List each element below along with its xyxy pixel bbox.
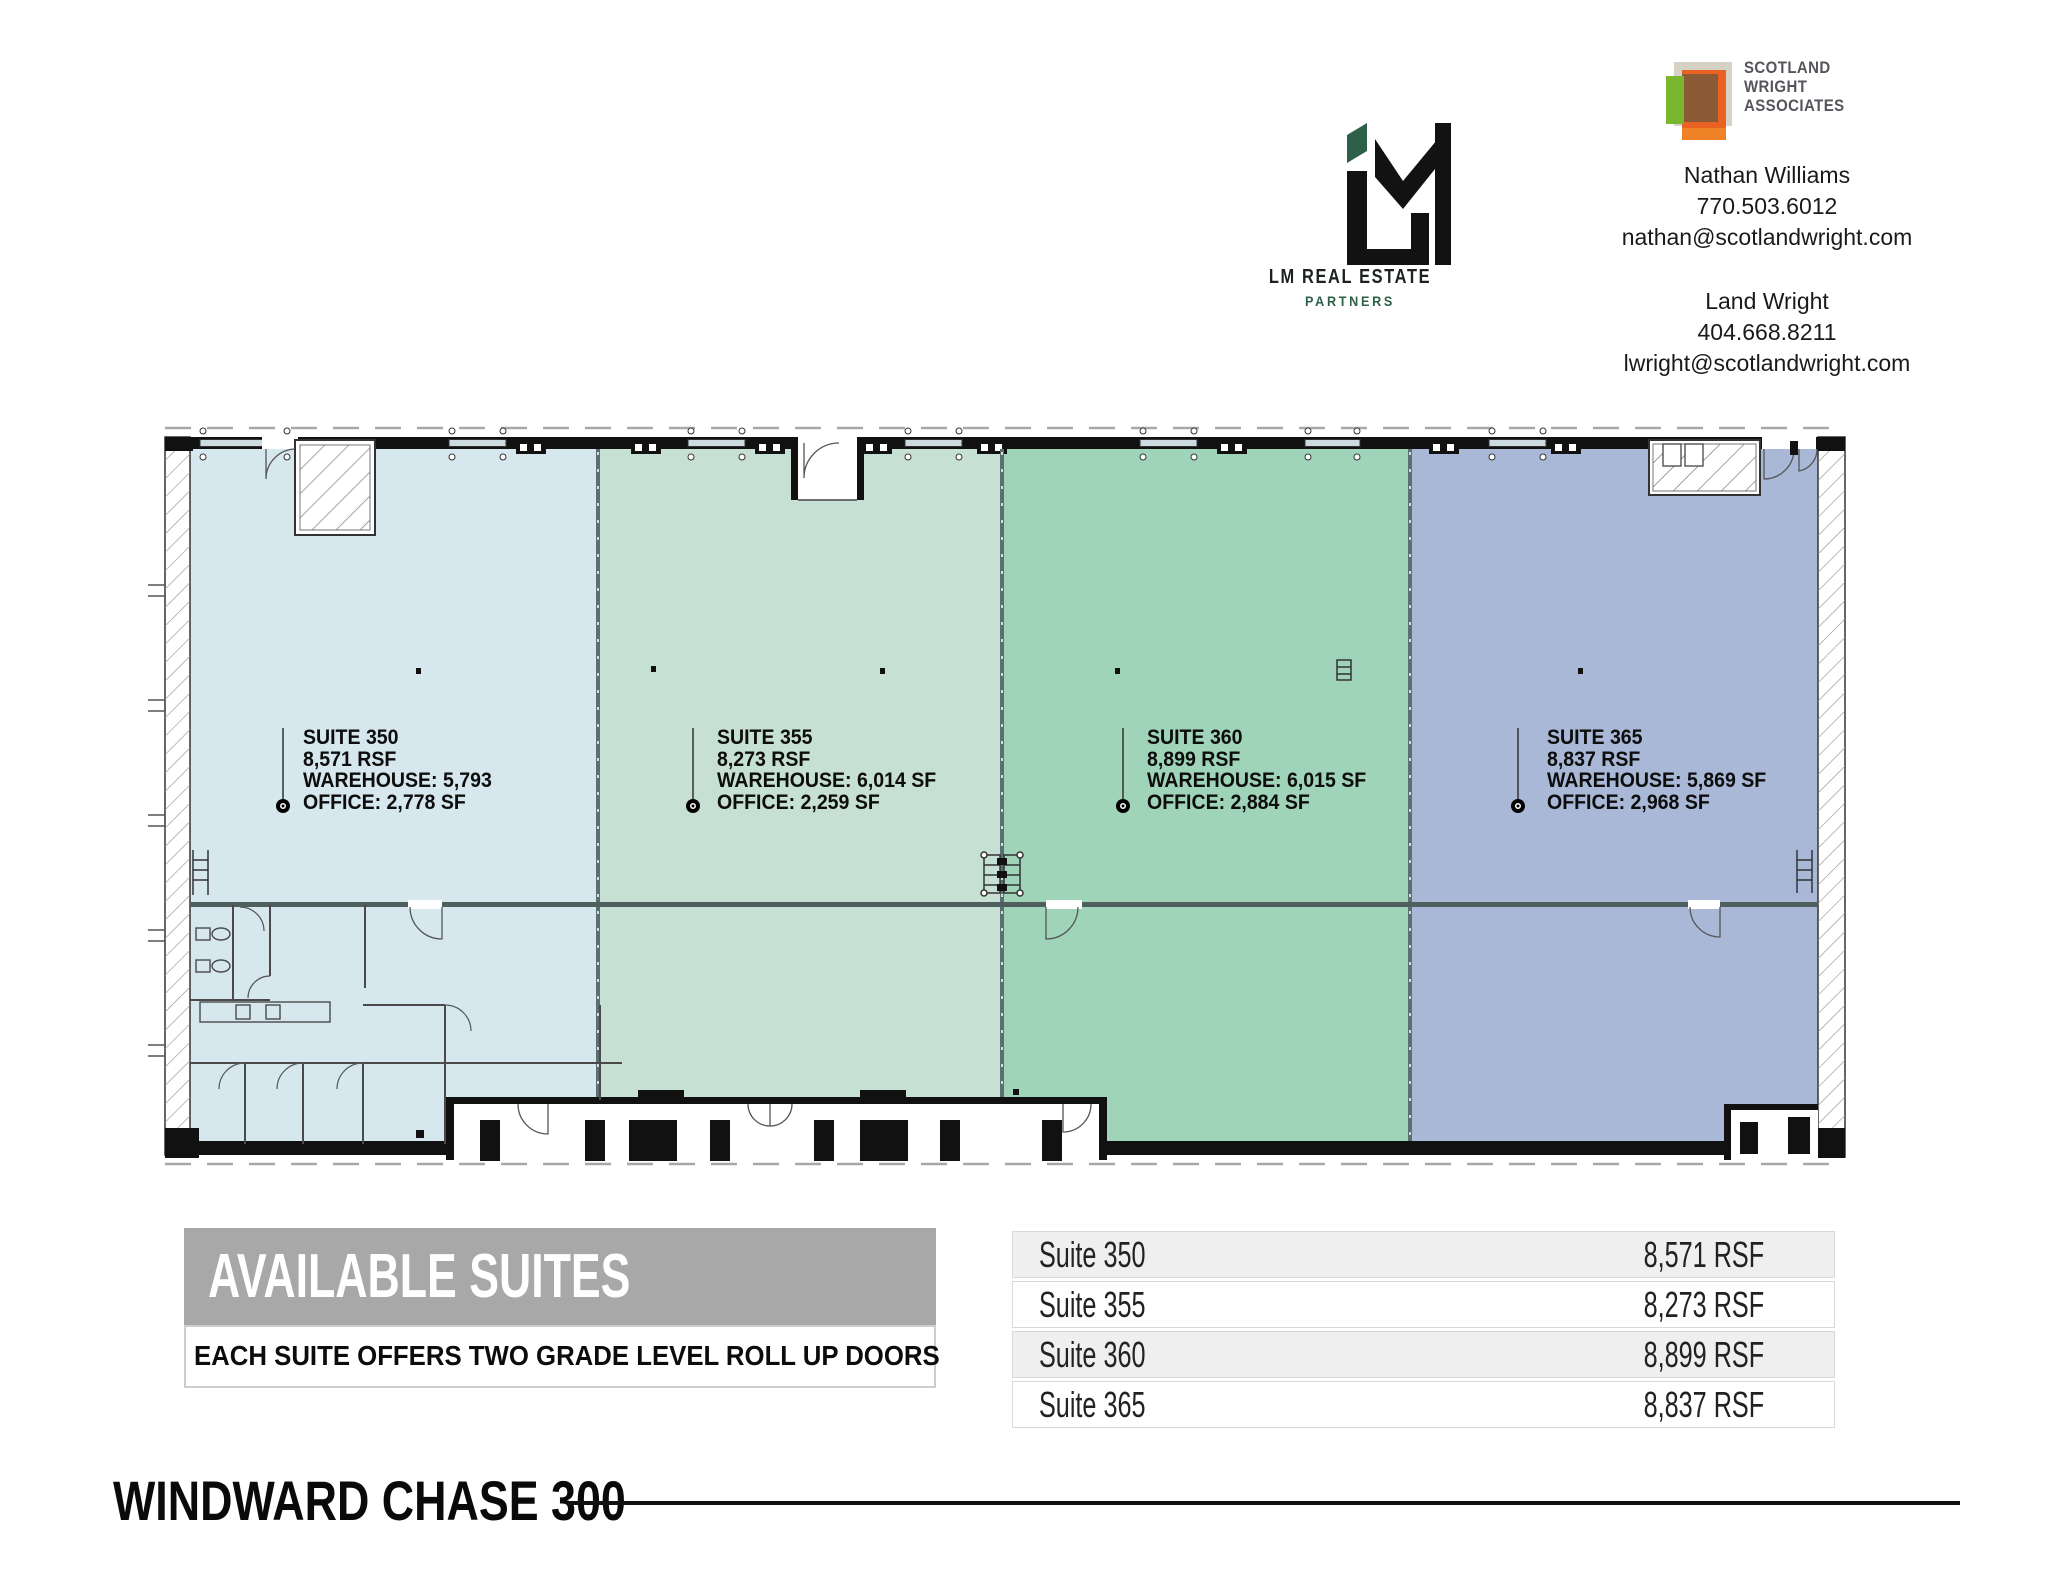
left-wall-ticks bbox=[148, 585, 165, 1056]
contact-name: Nathan Williams bbox=[1560, 160, 1974, 191]
suite-office: OFFICE: 2,778 SF bbox=[303, 792, 563, 814]
table-row: Suite 365 8,837 RSF bbox=[1012, 1381, 1835, 1428]
contact-nathan: Nathan Williams 770.503.6012 nathan@scot… bbox=[1560, 160, 1974, 253]
suite-office: OFFICE: 2,884 SF bbox=[1147, 792, 1407, 814]
table-row: Suite 350 8,571 RSF bbox=[1012, 1231, 1835, 1278]
contact-phone: 404.668.8211 bbox=[1560, 317, 1974, 348]
table-cell-suite: Suite 365 bbox=[1039, 1384, 1145, 1426]
suite-name: SUITE 350 bbox=[303, 727, 563, 749]
top-vestibule bbox=[791, 437, 864, 500]
contact-email: lwright@scotlandwright.com bbox=[1560, 348, 1974, 379]
lm-logo-text: LM REAL ESTATE PARTNERS bbox=[1180, 266, 1520, 311]
suite-rsf: 8,273 RSF bbox=[717, 749, 977, 771]
suite-warehouse: WAREHOUSE: 5,793 bbox=[303, 770, 563, 792]
lm-partners: PARTNERS bbox=[1305, 293, 1395, 309]
contact-name: Land Wright bbox=[1560, 286, 1974, 317]
table-row: Suite 355 8,273 RSF bbox=[1012, 1281, 1835, 1328]
suite-name: SUITE 365 bbox=[1547, 727, 1807, 749]
contact-land: Land Wright 404.668.8211 lwright@scotlan… bbox=[1560, 286, 1974, 379]
suite-name: SUITE 360 bbox=[1147, 727, 1407, 749]
suite-rsf: 8,571 RSF bbox=[303, 749, 563, 771]
suite-summary-table: Suite 350 8,571 RSF Suite 355 8,273 RSF … bbox=[1012, 1231, 1835, 1431]
lm-logo-m-leg bbox=[1435, 123, 1451, 265]
lm-logo-green-accent bbox=[1347, 123, 1367, 163]
suite-355-label: SUITE 355 8,273 RSF WAREHOUSE: 6,014 SF … bbox=[717, 727, 997, 813]
sw-line1: SCOTLAND bbox=[1744, 58, 1845, 77]
suite-warehouse: WAREHOUSE: 5,869 SF bbox=[1547, 770, 1807, 792]
sw-logo-green bbox=[1666, 76, 1684, 124]
sw-logo-brown bbox=[1682, 74, 1718, 122]
table-cell-rsf: 8,899 RSF bbox=[1644, 1334, 1764, 1376]
sw-logo-orange-strip bbox=[1682, 128, 1726, 140]
suite-warehouse: WAREHOUSE: 6,015 SF bbox=[1147, 770, 1407, 792]
left-stair-room bbox=[295, 440, 375, 535]
property-title-text: WINDWARD CHASE 300 bbox=[113, 1468, 626, 1533]
bottom-right-notch bbox=[1724, 1104, 1818, 1160]
suite-warehouse: WAREHOUSE: 6,014 SF bbox=[717, 770, 977, 792]
table-row: Suite 360 8,899 RSF bbox=[1012, 1331, 1835, 1378]
table-cell-rsf: 8,571 RSF bbox=[1644, 1234, 1764, 1276]
suite-365-label: SUITE 365 8,837 RSF WAREHOUSE: 5,869 SF … bbox=[1547, 727, 1827, 813]
suite-350-label: SUITE 350 8,571 RSF WAREHOUSE: 5,793 OFF… bbox=[303, 727, 583, 813]
available-suites-header-bar: AVAILABLE SUITES bbox=[184, 1228, 936, 1325]
suite-name: SUITE 355 bbox=[717, 727, 977, 749]
suite-360-label: SUITE 360 8,899 RSF WAREHOUSE: 6,015 SF … bbox=[1147, 727, 1427, 813]
available-suites-title: AVAILABLE SUITES bbox=[208, 1228, 630, 1325]
contact-phone: 770.503.6012 bbox=[1560, 191, 1974, 222]
available-suites-subheader-bar: EACH SUITE OFFERS TWO GRADE LEVEL ROLL U… bbox=[184, 1325, 936, 1388]
lm-name: LM REAL ESTATE bbox=[1269, 266, 1431, 289]
contact-email: nathan@scotlandwright.com bbox=[1560, 222, 1974, 253]
sw-line3: ASSOCIATES bbox=[1744, 96, 1845, 115]
suite-office: OFFICE: 2,968 SF bbox=[1547, 792, 1807, 814]
suite-office: OFFICE: 2,259 SF bbox=[717, 792, 977, 814]
suite-rsf: 8,837 RSF bbox=[1547, 749, 1807, 771]
scotland-wright-logo-icon bbox=[1666, 58, 1740, 142]
suite-rsf: 8,899 RSF bbox=[1147, 749, 1407, 771]
footer-rule bbox=[568, 1501, 1960, 1505]
scotland-wright-logo-text: SCOTLAND WRIGHT ASSOCIATES bbox=[1744, 58, 1858, 115]
table-cell-rsf: 8,273 RSF bbox=[1644, 1284, 1764, 1326]
available-suites-subtitle: EACH SUITE OFFERS TWO GRADE LEVEL ROLL U… bbox=[194, 1327, 940, 1384]
sw-line2: WRIGHT bbox=[1744, 77, 1845, 96]
table-cell-rsf: 8,837 RSF bbox=[1644, 1384, 1764, 1426]
table-cell-suite: Suite 350 bbox=[1039, 1234, 1145, 1276]
table-cell-suite: Suite 355 bbox=[1039, 1284, 1145, 1326]
lm-logo-icon bbox=[1347, 115, 1459, 265]
table-cell-suite: Suite 360 bbox=[1039, 1334, 1145, 1376]
